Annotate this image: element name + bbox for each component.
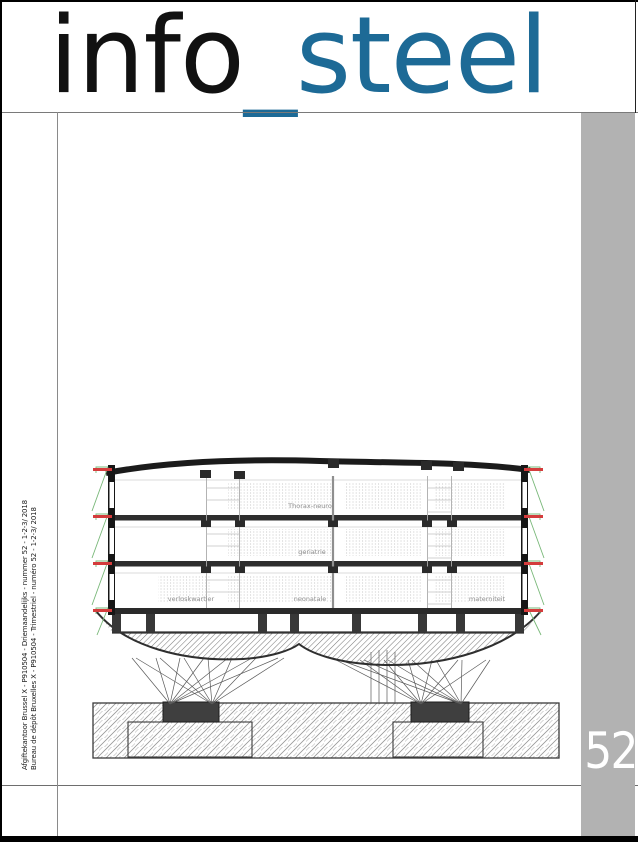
label-verloskwartier: verloskwartier [168,595,215,603]
label-geriatrie: geriatrie [298,548,326,556]
ground-floor-window-band [111,608,527,633]
label-neonatale: neonatale [294,595,327,603]
pedestal-right [411,702,469,722]
label-thorax-neuro: Thorax-neuro [287,502,332,510]
magazine-cover: { "masthead": { "title_primary": "info",… [0,0,638,842]
soffit-hatch [96,611,541,665]
structure-slabs [106,460,530,573]
floor-slab-3 [111,561,525,567]
label-materniteit: materniteit [469,595,506,603]
roof-slab [106,460,530,473]
pedestal-left [163,702,219,722]
ceiling-grids [158,483,506,602]
building-section-drawing: Thorax-neuro geriatrie verloskwartier ne… [0,0,638,842]
foundation-slab [93,702,559,758]
floor-slab-2 [111,515,525,521]
